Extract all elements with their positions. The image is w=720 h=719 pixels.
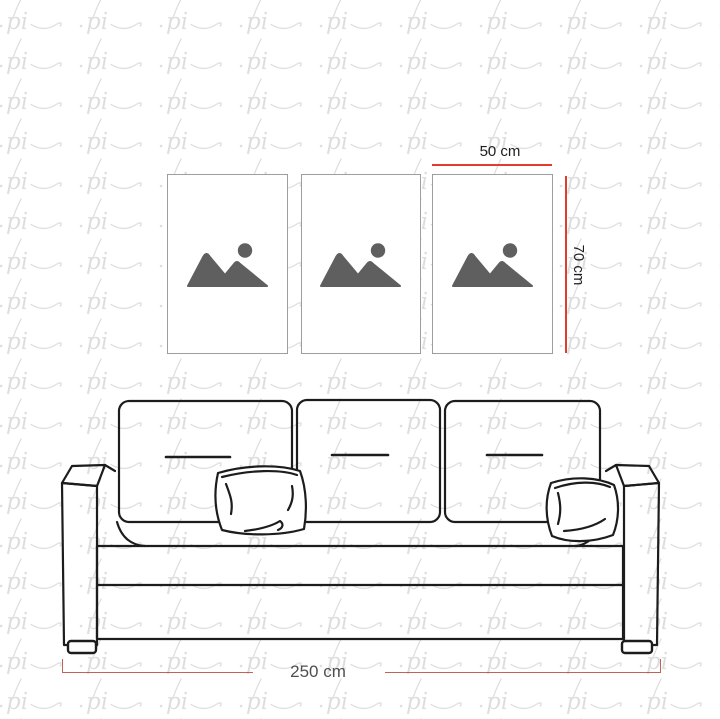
image-placeholder-icon	[186, 241, 270, 287]
sofa-width-label: 250 cm	[290, 662, 346, 682]
poster-frame-3	[432, 174, 553, 354]
sofa-width-measure-line-right	[385, 672, 661, 673]
sofa-pillow-left	[215, 466, 306, 534]
sofa-armrest-left	[62, 465, 115, 645]
poster-frame-1	[167, 174, 288, 354]
wall-art-size-guide-illustration: pi	[0, 0, 720, 719]
image-placeholder-icon	[319, 241, 403, 287]
frame-width-measure-line	[432, 164, 552, 166]
sofa-seat-base	[97, 546, 623, 639]
sofa-width-measure-line-left	[62, 672, 253, 673]
sofa-pillow-right	[547, 478, 618, 541]
sofa-foot-left	[68, 641, 96, 653]
sofa-width-measure-tick-left	[62, 659, 63, 673]
sofa-foot-right	[622, 641, 652, 653]
frame-height-label: 70 cm	[570, 245, 587, 286]
poster-frame-2	[301, 174, 421, 354]
sofa-illustration	[0, 0, 720, 719]
sofa-back-cushion-middle	[297, 400, 440, 522]
frame-height-measure-line	[565, 176, 567, 353]
image-placeholder-icon	[451, 241, 535, 287]
sofa-width-measure-tick-right	[660, 659, 661, 673]
frame-width-label: 50 cm	[480, 143, 521, 160]
